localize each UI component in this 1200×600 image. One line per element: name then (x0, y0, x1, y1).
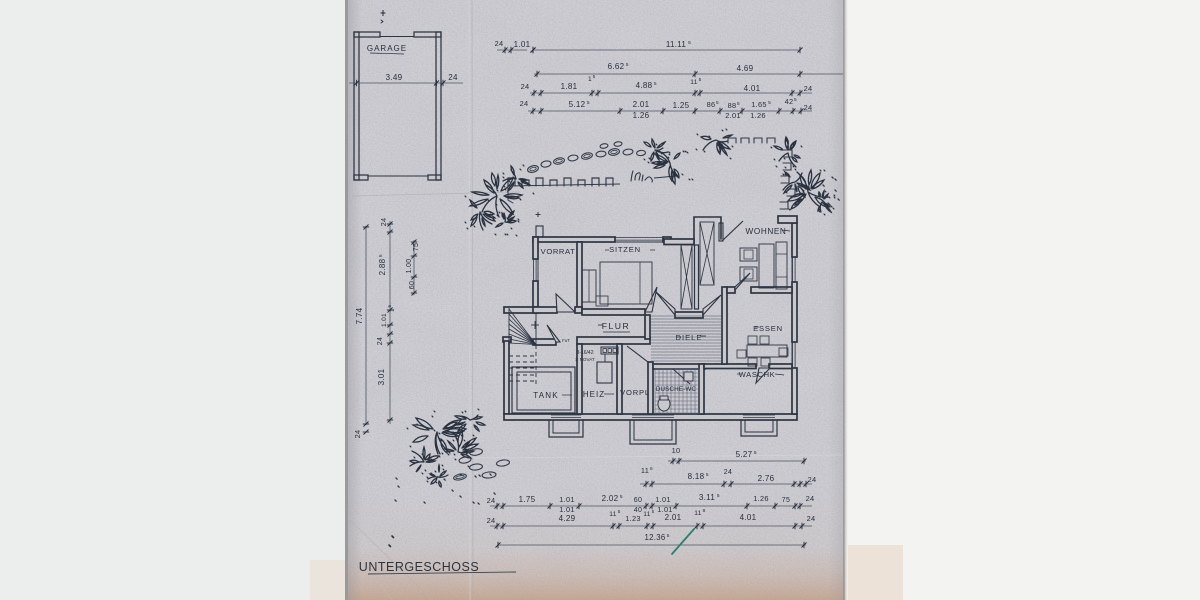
svg-text:1: 1 (588, 76, 592, 83)
svg-text:5: 5 (378, 254, 384, 257)
svg-text:2.02: 2.02 (602, 494, 619, 503)
svg-text:5: 5 (593, 74, 596, 80)
svg-text:60: 60 (409, 281, 416, 289)
svg-text:5: 5 (699, 77, 702, 83)
svg-text:1.01: 1.01 (559, 505, 575, 514)
svg-text:4.29: 4.29 (559, 514, 576, 523)
svg-text:2.88: 2.88 (378, 258, 387, 275)
svg-text:7.74: 7.74 (355, 307, 364, 324)
svg-text:11: 11 (609, 511, 616, 518)
svg-text:5: 5 (587, 100, 590, 106)
svg-text:88: 88 (728, 101, 737, 110)
svg-text:5: 5 (716, 100, 719, 106)
svg-text:24: 24 (487, 496, 496, 505)
svg-text:12.36: 12.36 (644, 533, 665, 542)
svg-text:2.01: 2.01 (725, 111, 741, 120)
svg-text:S NOVAT: S NOVAT (575, 357, 595, 362)
svg-text:86: 86 (707, 100, 716, 109)
svg-text:11: 11 (643, 511, 650, 518)
svg-text:3.49: 3.49 (386, 73, 403, 82)
svg-text:FuT: FuT (562, 338, 570, 343)
svg-text:24: 24 (724, 469, 732, 476)
svg-text:24: 24 (804, 103, 813, 112)
svg-text:42: 42 (785, 97, 794, 106)
svg-text:FLUR: FLUR (602, 321, 630, 331)
svg-text:5: 5 (667, 533, 670, 539)
svg-text:SITZEN: SITZEN (609, 245, 641, 254)
svg-text:HEIZ: HEIZ (583, 390, 605, 399)
svg-text:24: 24 (806, 494, 815, 503)
svg-text:5: 5 (618, 509, 621, 515)
svg-text:24: 24 (807, 514, 816, 523)
svg-text:11: 11 (694, 510, 701, 517)
svg-text:1.75: 1.75 (519, 495, 536, 504)
svg-text:8.18: 8.18 (688, 472, 705, 481)
svg-text:1.23: 1.23 (625, 514, 641, 523)
svg-text:1.26: 1.26 (633, 111, 650, 120)
svg-text:1: 1 (390, 308, 396, 311)
svg-text:5.27: 5.27 (736, 450, 753, 459)
svg-text:1.01: 1.01 (655, 495, 671, 504)
svg-text:VORPL: VORPL (620, 388, 650, 397)
svg-text:WASCHK: WASCHK (739, 370, 776, 379)
svg-text:5.12: 5.12 (569, 100, 586, 109)
svg-text:24: 24 (377, 337, 384, 345)
svg-text:5: 5 (768, 100, 771, 106)
svg-text:ESSEN: ESSEN (753, 324, 783, 333)
svg-text:3.11: 3.11 (699, 493, 715, 502)
svg-text:11: 11 (690, 79, 697, 86)
svg-text:1.81: 1.81 (561, 82, 578, 91)
svg-text:24: 24 (521, 82, 530, 91)
svg-text:5: 5 (717, 493, 720, 499)
svg-text:5: 5 (652, 509, 655, 515)
svg-text:2.01: 2.01 (665, 513, 682, 522)
svg-text:75: 75 (413, 243, 420, 251)
svg-text:5: 5 (387, 305, 393, 308)
svg-text:2.01: 2.01 (633, 100, 650, 109)
svg-text:24: 24 (808, 475, 817, 484)
svg-text:GARAGE: GARAGE (367, 44, 407, 53)
svg-text:4.69: 4.69 (737, 64, 754, 73)
svg-text:5: 5 (626, 62, 629, 68)
svg-text:5: 5 (754, 450, 757, 456)
svg-text:11: 11 (641, 466, 649, 475)
svg-text:5: 5 (654, 81, 657, 87)
svg-text:5: 5 (620, 494, 623, 500)
svg-text:2.76: 2.76 (758, 474, 775, 483)
svg-text:3-16/42: 3-16/42 (577, 350, 594, 356)
svg-text:6: 6 (650, 466, 653, 472)
svg-text:UNTERGESCHOSS: UNTERGESCHOSS (359, 560, 479, 574)
svg-text:4.01: 4.01 (744, 84, 761, 93)
svg-text:1.00: 1.00 (406, 259, 413, 274)
svg-text:8: 8 (703, 508, 706, 514)
svg-text:3.01: 3.01 (377, 368, 386, 385)
svg-text:24: 24 (379, 218, 388, 227)
svg-text:5: 5 (688, 40, 691, 46)
svg-text:1.26: 1.26 (750, 111, 766, 120)
svg-text:24: 24 (495, 39, 504, 48)
svg-text:1.01: 1.01 (514, 40, 531, 49)
svg-text:5: 5 (794, 97, 797, 103)
svg-text:1.25: 1.25 (673, 101, 690, 110)
svg-text:WOHNEN: WOHNEN (746, 227, 787, 236)
svg-text:VORRAT: VORRAT (541, 247, 576, 256)
svg-text:75: 75 (782, 497, 790, 504)
svg-text:60: 60 (634, 497, 642, 504)
svg-text:DIELE: DIELE (676, 333, 703, 342)
svg-text:24: 24 (448, 73, 458, 82)
svg-text:10: 10 (672, 446, 681, 455)
svg-text:24: 24 (804, 84, 813, 93)
svg-text:24: 24 (520, 99, 529, 108)
svg-text:11.11: 11.11 (666, 40, 687, 49)
svg-text:24: 24 (487, 516, 496, 525)
svg-text:1.65: 1.65 (751, 100, 767, 109)
svg-text:1.01: 1.01 (559, 495, 575, 504)
svg-text:DUSCHE-WC: DUSCHE-WC (656, 386, 697, 393)
svg-text:4.01: 4.01 (740, 513, 757, 522)
svg-text:5: 5 (706, 472, 709, 478)
svg-text:1.01: 1.01 (381, 313, 388, 327)
svg-text:6.62: 6.62 (608, 62, 625, 71)
svg-text:4.88: 4.88 (636, 81, 653, 90)
svg-text:40: 40 (634, 507, 642, 514)
svg-text:1.26: 1.26 (753, 494, 769, 503)
svg-text:24: 24 (353, 430, 362, 439)
svg-text:5: 5 (737, 101, 740, 107)
svg-text:TANK: TANK (533, 391, 559, 400)
